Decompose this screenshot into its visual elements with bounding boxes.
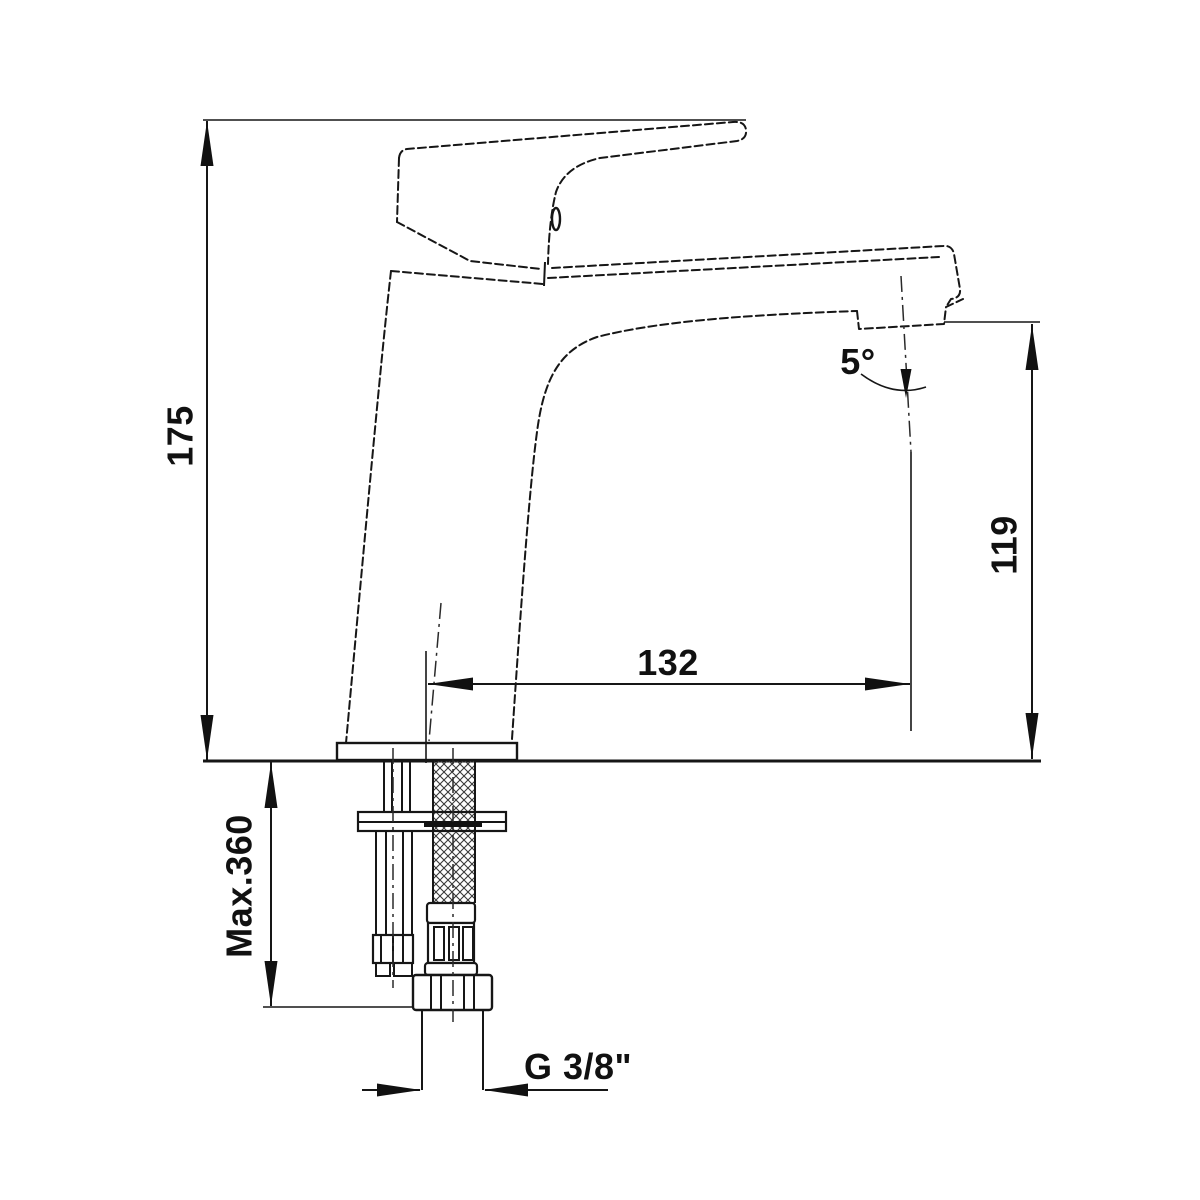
rod-nut-tab-left [376, 963, 390, 976]
fixing-rods-upper [384, 761, 410, 812]
arrow-down-icon [1026, 713, 1039, 758]
annotation-outlet-angle: 5° [840, 276, 926, 452]
arrow-right-icon [865, 678, 910, 691]
label-outlet-angle: 5° [840, 341, 875, 382]
dimension-connection-thread: G 3/8" [362, 1046, 632, 1097]
arrow-up-icon [1026, 325, 1039, 370]
arrow-right-icon [377, 1084, 421, 1097]
lever-handle-outline [399, 122, 746, 264]
flow-arrow-down-icon [901, 369, 912, 398]
body-centerline [429, 603, 441, 741]
jet-centerline [901, 276, 911, 452]
mounting-deck [203, 743, 1041, 761]
body-top-edge [391, 271, 543, 284]
base-flange [337, 743, 517, 760]
arrow-down-icon [201, 715, 214, 760]
arrow-up-icon [265, 763, 278, 808]
rod-nut-tab-right [394, 963, 412, 976]
label-spout-reach: 132 [637, 642, 699, 683]
label-connection-thread: G 3/8" [524, 1046, 632, 1087]
arrow-left-icon [428, 678, 473, 691]
hose-collar-lower [425, 963, 477, 975]
technical-drawing-page: 175 119 132 5° Max.360 G 3/8" [0, 0, 1200, 1200]
faucet-dimension-drawing: 175 119 132 5° Max.360 G 3/8" [0, 0, 1200, 1200]
label-outlet-height: 119 [984, 515, 1025, 575]
under-deck-assembly [358, 748, 506, 1090]
joint-tick [544, 262, 545, 286]
spout-top-chamfer-edge [548, 257, 939, 278]
arrow-up-icon [201, 121, 214, 166]
body-left-edge [346, 271, 391, 743]
dimension-outlet-height: 119 [944, 322, 1040, 759]
spout-top-edge [552, 246, 960, 307]
label-max-depth: Max.360 [219, 814, 260, 958]
lever-handle-left-edge [397, 158, 399, 222]
arrow-left-icon [484, 1084, 528, 1097]
label-overall-height: 175 [160, 405, 201, 467]
lever-detail-clip [552, 208, 560, 230]
hose-collar-upper [427, 903, 475, 923]
dimension-spout-reach: 132 [426, 452, 911, 763]
lever-base-skirt [397, 222, 541, 269]
arrow-down-icon [265, 961, 278, 1006]
